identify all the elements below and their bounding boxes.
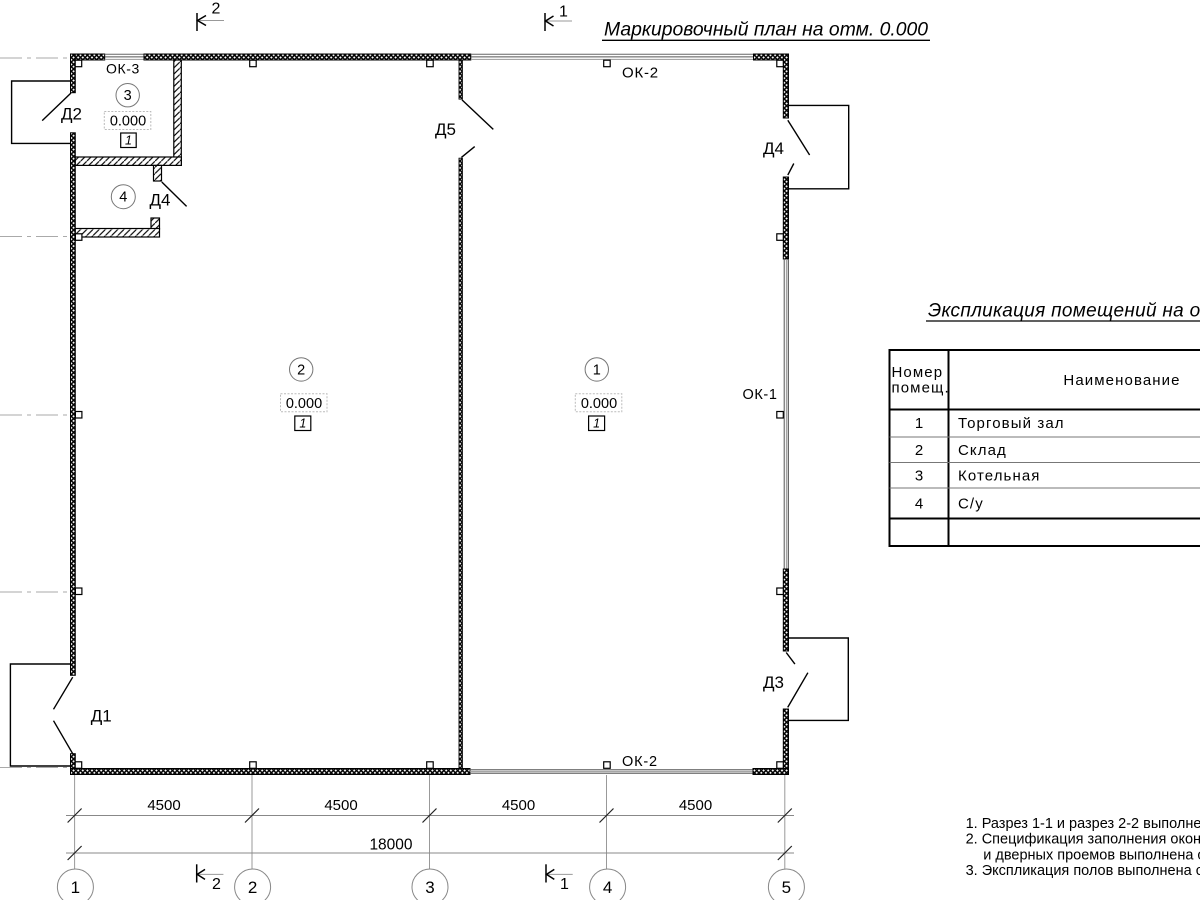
svg-text:4500: 4500 [147, 797, 180, 814]
svg-text:Д2: Д2 [61, 105, 82, 124]
svg-text:Маркировочный план на отм. 0.0: Маркировочный план на отм. 0.000 [604, 19, 928, 41]
svg-text:0.000: 0.000 [110, 114, 146, 130]
svg-text:4500: 4500 [502, 797, 535, 814]
svg-text:Д5: Д5 [435, 120, 456, 139]
svg-text:ОК-3: ОК-3 [106, 61, 140, 77]
svg-text:0.000: 0.000 [581, 396, 617, 412]
svg-text:4500: 4500 [679, 797, 712, 814]
svg-text:1: 1 [299, 416, 306, 430]
svg-text:1: 1 [559, 4, 568, 21]
svg-text:1: 1 [593, 416, 600, 430]
svg-text:Котельная: Котельная [958, 468, 1041, 485]
svg-text:Д4: Д4 [763, 139, 784, 158]
svg-text:1: 1 [125, 133, 132, 147]
svg-text:Склад: Склад [958, 442, 1007, 459]
svg-text:и дверных проемов выполнена см: и дверных проемов выполнена см. [983, 847, 1200, 863]
svg-text:Номер: Номер [892, 364, 944, 381]
svg-text:1: 1 [593, 362, 601, 378]
svg-text:Д1: Д1 [91, 707, 112, 726]
svg-text:2: 2 [248, 878, 257, 897]
svg-text:4: 4 [119, 190, 127, 206]
svg-text:Д4: Д4 [150, 191, 171, 210]
svg-text:ОК-2: ОК-2 [622, 65, 659, 82]
svg-text:Д3: Д3 [763, 673, 784, 692]
svg-text:ОК-1: ОК-1 [743, 387, 778, 403]
svg-text:1. Разрез 1-1 и разрез 2-2 вып: 1. Разрез 1-1 и разрез 2-2 выполнены [966, 816, 1200, 832]
svg-text:1: 1 [560, 876, 569, 893]
svg-text:2: 2 [915, 442, 923, 459]
svg-text:4: 4 [915, 496, 923, 513]
svg-text:3: 3 [124, 88, 132, 104]
svg-text:0.000: 0.000 [286, 396, 322, 412]
svg-text:Наименование: Наименование [1063, 372, 1180, 389]
svg-text:помещ.: помещ. [892, 380, 950, 397]
svg-text:5: 5 [782, 878, 791, 897]
svg-text:4500: 4500 [324, 797, 357, 814]
svg-text:1: 1 [71, 878, 80, 897]
svg-text:2. Спецификация заполнения око: 2. Спецификация заполнения оконных [966, 832, 1200, 848]
svg-text:Торговый зал: Торговый зал [958, 415, 1065, 432]
svg-text:3. Экспликация полов выполнена: 3. Экспликация полов выполнена см. [966, 863, 1200, 879]
svg-text:С/у: С/у [958, 496, 984, 513]
svg-text:2: 2 [212, 1, 221, 18]
svg-text:ОК-2: ОК-2 [622, 754, 658, 770]
svg-text:3: 3 [425, 878, 434, 897]
svg-text:Экспликация помещений на отм: Экспликация помещений на отм [928, 301, 1200, 322]
svg-text:1: 1 [915, 415, 923, 432]
svg-text:2: 2 [212, 876, 221, 893]
svg-text:2: 2 [297, 362, 305, 378]
svg-text:3: 3 [915, 468, 923, 485]
svg-text:4: 4 [603, 878, 612, 897]
svg-text:18000: 18000 [369, 837, 412, 854]
